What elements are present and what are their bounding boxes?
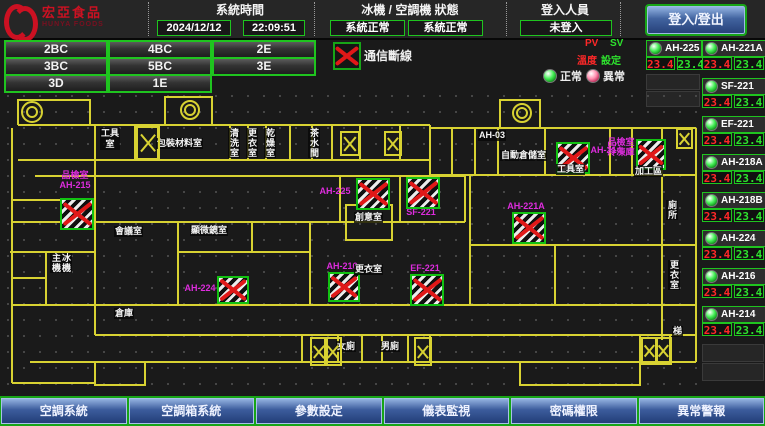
stairwell-icon [136, 126, 160, 160]
nav-button[interactable]: 異常警報 [639, 398, 765, 424]
ac-status-value: 系統正常 [408, 20, 483, 36]
room-label: AH-03 [478, 130, 506, 141]
unit-name-label: AH-218B [721, 195, 763, 206]
room-label: 清洗室 [228, 128, 240, 158]
company-logo: 宏亞食品 HUNYA FOODS [4, 2, 144, 36]
abnormal-status-legend: 異常 [586, 68, 625, 84]
unit-name-label: AH-224 [721, 233, 755, 244]
comm-loss-legend-label: 通信斷線 [364, 47, 412, 64]
header-divider [148, 2, 149, 36]
chiller-status-value: 系統正常 [330, 20, 405, 36]
stairwell-icon [676, 128, 693, 149]
equipment-label: 品檢室 AH-215 [48, 170, 102, 190]
nav-button[interactable]: 密碼權限 [511, 398, 637, 424]
header-bar: 宏亞食品 HUNYA FOODS 系統時間 2024/12/12 22:09:5… [0, 0, 765, 40]
login-user-label: 登入人員 [515, 1, 615, 18]
nav-button[interactable]: 儀表監視 [384, 398, 510, 424]
unit-name-label: SF-221 [721, 81, 754, 92]
unit-name-label: AH-214 [721, 309, 755, 320]
room-label: 自動倉儲室 [500, 150, 547, 161]
unit-values: 23.423.4 [702, 133, 764, 146]
room-label: 乾燥室 [264, 128, 276, 158]
nav-button[interactable]: 空調箱系統 [129, 398, 255, 424]
machine-status-label: 冰機 / 空調機 狀態 [330, 1, 490, 18]
unit-pv-value: 23.4 [702, 57, 732, 70]
nav-button[interactable]: 參數設定 [256, 398, 382, 424]
logo-icon [4, 4, 38, 34]
equipment-label: AH-225 [316, 186, 354, 196]
sv-cn-label: 設定 [601, 52, 621, 67]
unit-name-label: AH-221A [721, 43, 763, 54]
unit-pv-value: 23.4 [702, 285, 732, 298]
abnormal-led-icon [586, 69, 600, 83]
ahu-equipment-icon[interactable] [406, 177, 440, 209]
nav-button[interactable]: 空調系統 [1, 398, 127, 424]
unit-name-label: EF-221 [721, 119, 754, 130]
ahu-equipment-icon[interactable] [356, 178, 390, 210]
unit-row-ah-216[interactable]: AH-216 [702, 268, 765, 285]
unit-sv-value[interactable]: 23.4 [734, 209, 764, 222]
stairwell-icon [324, 337, 342, 366]
equipment-label: AH-221A [504, 201, 548, 211]
unit-sv-value[interactable]: 23.4 [734, 285, 764, 298]
unit-status-led [649, 42, 662, 55]
room-label: 包裝材料室 [156, 138, 203, 149]
unit-row-ah-224[interactable]: AH-224 [702, 230, 765, 247]
brand-name: 宏亞食品 [42, 7, 104, 19]
unit-pv-value: 23.4 [702, 171, 732, 184]
unit-sv-value[interactable]: 23.4 [734, 57, 764, 70]
room-label: 加工區 [634, 166, 663, 177]
unit-status-led [705, 232, 718, 245]
sv-label: SV [610, 38, 623, 49]
system-time-value: 22:09:51 [243, 20, 305, 36]
unit-row-ah-225[interactable]: AH-225 [646, 40, 702, 57]
room-label: 冰機 主機 [50, 253, 72, 273]
unit-name-label: AH-216 [721, 271, 755, 282]
room-label: 廁所 [666, 200, 678, 220]
stairwell-icon [384, 131, 402, 156]
ahu-equipment-icon[interactable] [60, 198, 94, 230]
normal-led-icon [543, 69, 557, 83]
header-divider [620, 2, 621, 36]
empty-unit-slot [702, 344, 764, 362]
room-label: 工具室 [556, 164, 585, 175]
stairwell-icon [414, 337, 432, 366]
room-label: 更衣室 [246, 128, 258, 158]
room-label: 創意室 [354, 212, 383, 223]
unit-values: 23.423.4 [702, 57, 764, 70]
comm-loss-legend-icon [333, 42, 361, 70]
unit-sv-value[interactable]: 23.4 [734, 171, 764, 184]
room-label: 會議室 [114, 226, 143, 237]
equipment-label: AH-224 [184, 283, 216, 293]
unit-name-label: AH-218A [721, 157, 763, 168]
bottom-nav: 空調系統空調箱系統參數設定儀表監視密碼權限異常警報 [0, 396, 765, 426]
unit-values: 23.423.4 [702, 171, 764, 184]
unit-sv-value[interactable]: 23.4 [734, 247, 764, 260]
unit-values: 23.423.4 [702, 247, 764, 260]
room-label: 男廁 [380, 341, 400, 352]
pv-cn-label: 溫度 [577, 52, 597, 67]
room-label: 更衣室 [354, 264, 383, 275]
equipment-label: EF-221 [406, 263, 444, 273]
login-user-value: 未登入 [520, 20, 612, 36]
system-time-label: 系統時間 [180, 1, 300, 18]
unit-status-led [705, 194, 718, 207]
normal-label: 正常 [560, 68, 582, 84]
header-divider [506, 2, 507, 36]
unit-status-led [705, 270, 718, 283]
brand-name-en: HUNYA FOODS [42, 19, 104, 31]
unit-row-ah-218a[interactable]: AH-218A [702, 154, 765, 171]
room-label: 顯微鏡室 [190, 225, 228, 236]
stairwell-icon [655, 337, 672, 365]
unit-pv-value: 23.4 [702, 323, 732, 336]
unit-row-ef-221[interactable]: EF-221 [702, 116, 765, 133]
unit-values: 23.423.4 [702, 323, 764, 336]
room-label: 工具 室 [100, 128, 120, 150]
unit-values: 23.423.4 [702, 95, 764, 108]
normal-status-legend: 正常 [543, 68, 582, 84]
unit-sv-value[interactable]: 23.4 [734, 133, 764, 146]
unit-sv-value[interactable]: 23.4 [734, 323, 764, 336]
unit-values: 23.423.4 [646, 57, 700, 70]
unit-row-sf-221[interactable]: SF-221 [702, 78, 765, 95]
unit-values: 23.423.4 [702, 285, 764, 298]
room-label: 梯 [672, 326, 683, 337]
unit-status-led [705, 42, 718, 55]
empty-unit-slot [702, 363, 764, 381]
floor-button-3e[interactable]: 3E [212, 57, 316, 76]
unit-status-led [705, 80, 718, 93]
unit-row-ah-218b[interactable]: AH-218B [702, 192, 765, 209]
stairwell-icon [340, 131, 360, 156]
ahu-equipment-icon[interactable] [217, 276, 249, 304]
room-label: 倉庫 [114, 308, 134, 319]
unit-sv-value[interactable]: 23.4 [734, 95, 764, 108]
ahu-equipment-icon[interactable] [328, 272, 360, 302]
pv-label: PV [585, 38, 598, 49]
system-date-value: 2024/12/12 [157, 20, 231, 36]
unit-pv-value: 23.4 [702, 95, 732, 108]
floor-plan: 品檢室 AH-215AH-225SF-221AH-221AAH-216EF-22… [0, 88, 702, 396]
hmi-screen: 宏亞食品 HUNYA FOODS 系統時間 2024/12/12 22:09:5… [0, 0, 765, 426]
unit-row-ah-214[interactable]: AH-214 [702, 306, 765, 323]
unit-pv-value: 23.4 [646, 57, 675, 70]
unit-name-label: AH-225 [665, 43, 699, 54]
room-label: 更衣室 [668, 260, 680, 290]
header-divider [314, 2, 315, 36]
unit-pv-value: 23.4 [702, 133, 732, 146]
unit-status-led [705, 308, 718, 321]
ahu-equipment-icon[interactable] [512, 212, 546, 244]
login-logout-button[interactable]: 登入/登出 [647, 6, 745, 34]
unit-row-ah-221a[interactable]: AH-221A [702, 40, 765, 57]
room-label: 茶水間 [308, 128, 320, 158]
abnormal-label: 異常 [603, 68, 625, 84]
ahu-equipment-icon[interactable] [410, 274, 444, 306]
unit-status-led [705, 156, 718, 169]
equipment-label: 品檢室 冷凍庫 [606, 137, 636, 157]
unit-pv-value: 23.4 [702, 247, 732, 260]
unit-sv-value[interactable]: 23.4 [677, 57, 706, 70]
unit-status-led [705, 118, 718, 131]
unit-pv-value: 23.4 [702, 209, 732, 222]
unit-values: 23.423.4 [702, 209, 764, 222]
